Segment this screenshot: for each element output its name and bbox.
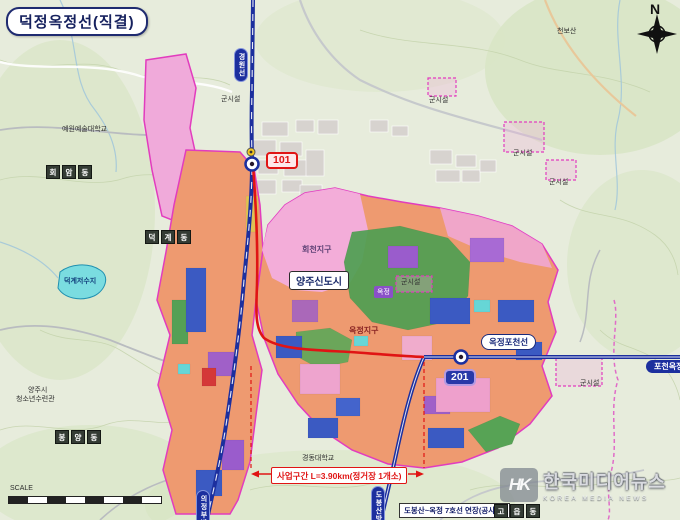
dong-goeup-char: 동 [526,504,540,518]
line7-construction-label: 도봉산~옥정 7호선 연장(공사중) [399,503,510,518]
map-root: 덕정옥정선(직결) N 101 201 양주신도시 옥정 옥정포천선 포천옥정 … [0,0,680,520]
watermark-korean: 한국미디어뉴스 [543,468,666,494]
label-military-4: 군시설 [549,179,568,187]
dong-deokgye-char: 계 [161,230,175,244]
compass-north-label: N [650,1,660,17]
label-okjeong-district: 옥정지구 [349,327,378,336]
pocheon-direction-pill: 포천옥정 [646,360,680,373]
dong-goeup-char: 고 [494,504,508,518]
label-scale: SCALE [10,485,33,493]
label-youth-center: 청소년수련관 [16,396,55,404]
yangju-newtown-label: 양주신도시 [289,271,349,290]
dong-hoeam-char: 동 [78,165,92,179]
label-military-6: 군시설 [401,279,420,287]
okjeong-chip: 옥정 [374,286,393,298]
dong-deokgye-char: 덕 [145,230,159,244]
label-military-1: 군시설 [221,96,240,104]
watermark-english: KOREA MEDIA NEWS [543,495,666,502]
label-cheonbosan: 천보산 [557,28,576,36]
station-201-badge: 201 [444,369,476,386]
map-title: 덕정옥정선(직결) [6,7,148,36]
dong-goeup-char: 읍 [510,504,524,518]
gyeongwon-line-pill: 경원선 [234,48,248,82]
dong-goeup: 고읍동 [494,504,540,518]
watermark-text: 한국미디어뉴스 KOREA MEDIA NEWS [543,468,666,502]
dong-deokgye-char: 동 [177,230,191,244]
dong-hoeam: 회암동 [46,165,92,179]
scale-bar [8,496,162,504]
label-layer: 덕정옥정선(직결) N 101 201 양주신도시 옥정 옥정포천선 포천옥정 … [0,0,680,520]
watermark-logo: HK [500,468,538,502]
dong-hoeam-char: 회 [46,165,60,179]
watermark: HK 한국미디어뉴스 KOREA MEDIA NEWS [500,468,666,502]
dong-bongyang: 봉양동 [55,430,101,444]
station-101-badge: 101 [266,152,298,169]
label-gyeongdong-univ: 경동대학교 [302,455,334,463]
dong-bongyang-char: 동 [87,430,101,444]
dong-bongyang-char: 봉 [55,430,69,444]
label-university: 예원예술대학교 [62,126,107,134]
project-section-annotation: 사업구간 L=3.90km(정거장 1개소) [271,467,407,484]
label-reservoir: 덕계저수지 [64,278,96,286]
dong-deokgye: 덕계동 [145,230,191,244]
label-military-5: 군시설 [580,380,599,388]
label-hoecheon-district: 회천지구 [302,246,331,255]
label-military-3: 군시설 [513,150,532,158]
label-yangju-city: 양주시 [28,387,47,395]
uijeongbu-direction-pill: 의정부방면 [196,490,210,520]
dong-hoeam-char: 암 [62,165,76,179]
dong-bongyang-char: 양 [71,430,85,444]
okjeong-pocheon-line-label: 옥정포천선 [481,334,536,350]
label-military-2: 군시설 [429,97,448,105]
dobongsan-direction-pill: 도봉산방면 [371,486,385,520]
